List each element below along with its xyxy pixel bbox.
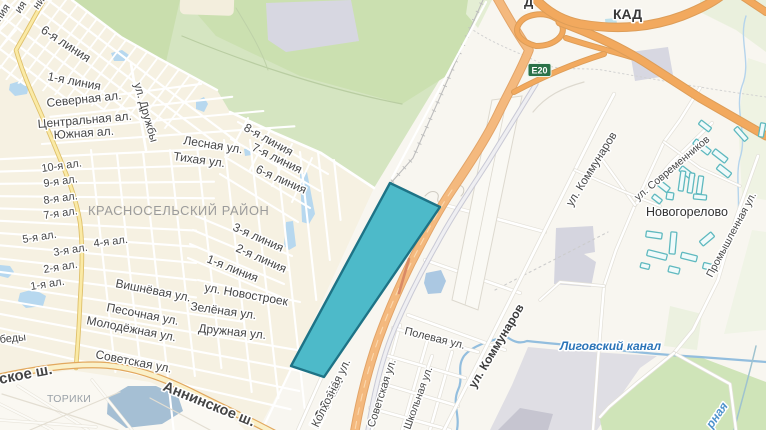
svg-text:ТОРИКИ: ТОРИКИ [47,393,91,405]
svg-text:КАД: КАД [613,6,642,22]
svg-text:КРАСНОСЕЛЬСКИЙ РАЙОН: КРАСНОСЕЛЬСКИЙ РАЙОН [88,203,269,218]
svg-text:Лиговский канал: Лиговский канал [559,339,662,353]
svg-text:E20: E20 [531,66,547,76]
svg-text:Новогорелово: Новогорелово [646,205,728,219]
svg-text:Д: Д [524,0,534,10]
